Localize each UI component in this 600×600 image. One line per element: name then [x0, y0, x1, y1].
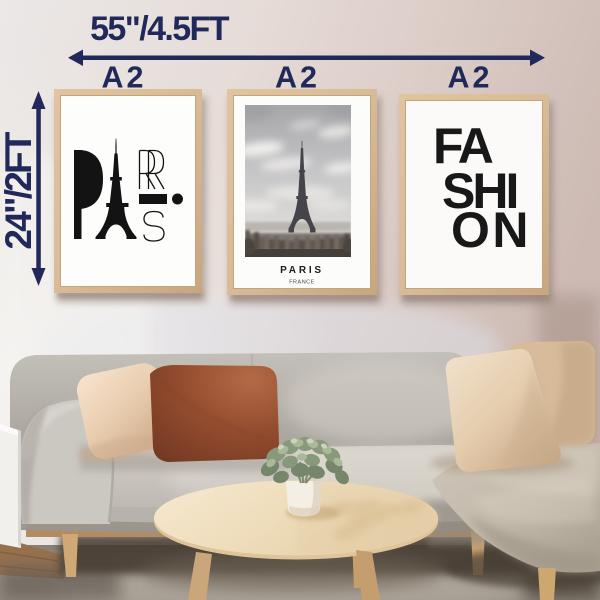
svg-text:A2: A2: [275, 61, 320, 95]
svg-text:A2: A2: [102, 61, 147, 95]
svg-text:A2: A2: [448, 61, 493, 95]
svg-text:55"/4.5FT: 55"/4.5FT: [90, 10, 230, 48]
svg-text:FRANCE: FRANCE: [289, 280, 315, 286]
svg-text:24"/2FT: 24"/2FT: [0, 131, 39, 249]
svg-text:ON: ON: [451, 202, 531, 258]
svg-text:PARIS: PARIS: [280, 265, 324, 276]
